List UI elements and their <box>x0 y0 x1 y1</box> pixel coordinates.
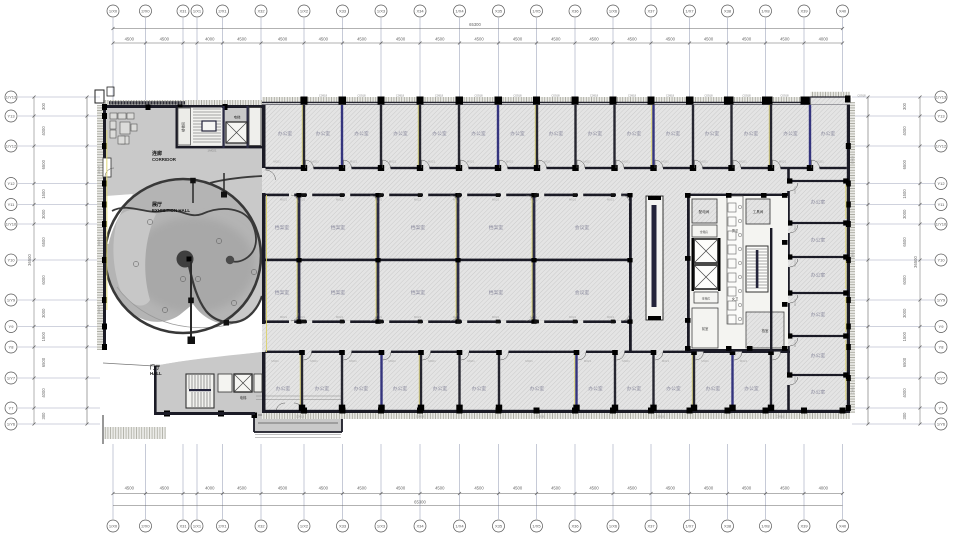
svg-text:M021: M021 <box>739 160 747 164</box>
svg-text:4000: 4000 <box>205 37 215 42</box>
svg-text:办公室: 办公室 <box>315 385 330 392</box>
svg-text:4500: 4500 <box>396 486 406 491</box>
svg-text:办公室: 办公室 <box>811 352 826 359</box>
svg-text:办公室: 办公室 <box>432 130 447 137</box>
svg-text:连廊: 连廊 <box>152 150 162 157</box>
svg-text:M021: M021 <box>793 298 797 306</box>
svg-text:4500: 4500 <box>396 37 406 42</box>
svg-text:M021: M021 <box>388 359 396 363</box>
svg-text:1/Y13: 1/Y13 <box>6 95 17 100</box>
svg-text:X36: X36 <box>571 9 579 14</box>
svg-text:1/X5: 1/X5 <box>532 9 541 14</box>
svg-text:M021: M021 <box>428 359 436 363</box>
svg-text:C0918: C0918 <box>857 94 866 98</box>
svg-text:办公室: 办公室 <box>744 385 759 392</box>
svg-text:4500: 4500 <box>474 486 484 491</box>
svg-text:Y13: Y13 <box>937 114 945 119</box>
svg-text:M021: M021 <box>700 160 708 164</box>
svg-text:1/Y6: 1/Y6 <box>937 422 946 427</box>
svg-text:1/X7: 1/X7 <box>685 9 694 14</box>
svg-text:M021: M021 <box>793 186 797 194</box>
svg-text:Y8: Y8 <box>9 345 15 350</box>
svg-text:4500: 4500 <box>319 486 329 491</box>
svg-text:4000: 4000 <box>41 126 46 136</box>
svg-text:1/X6: 1/X6 <box>609 524 618 529</box>
svg-text:M021: M021 <box>414 198 422 202</box>
svg-text:办公室: 办公室 <box>705 130 720 137</box>
svg-text:6500: 6500 <box>41 159 46 169</box>
svg-text:4500: 4500 <box>551 486 561 491</box>
svg-text:1/X0: 1/X0 <box>109 9 118 14</box>
svg-text:4500: 4500 <box>742 486 752 491</box>
svg-text:C0918: C0918 <box>656 415 665 419</box>
svg-text:36500: 36500 <box>27 254 32 266</box>
svg-text:X40: X40 <box>839 9 847 14</box>
svg-text:4500: 4500 <box>278 486 288 491</box>
svg-text:4500: 4500 <box>237 486 247 491</box>
svg-text:4500: 4500 <box>319 37 329 42</box>
svg-text:C0918: C0918 <box>396 94 405 98</box>
svg-text:2/X0: 2/X0 <box>141 9 150 14</box>
svg-text:M021: M021 <box>280 315 288 319</box>
svg-text:办公室: 办公室 <box>354 385 369 392</box>
svg-text:2/X0: 2/X0 <box>141 524 150 529</box>
svg-text:4000: 4000 <box>902 126 907 136</box>
svg-text:1/Y10: 1/Y10 <box>936 222 947 227</box>
svg-text:C0918: C0918 <box>590 94 599 98</box>
svg-text:M021: M021 <box>271 359 279 363</box>
svg-text:4500: 4500 <box>666 37 676 42</box>
svg-text:HALL: HALL <box>150 371 162 376</box>
svg-text:4500: 4500 <box>160 37 170 42</box>
svg-text:4500: 4500 <box>589 486 599 491</box>
svg-text:M021: M021 <box>793 224 797 232</box>
svg-text:1/Y7: 1/Y7 <box>937 376 946 381</box>
svg-text:M021: M021 <box>793 259 797 267</box>
svg-text:M021: M021 <box>414 315 422 319</box>
svg-text:4500: 4500 <box>704 486 714 491</box>
svg-text:X37: X37 <box>647 9 655 14</box>
svg-text:X35: X35 <box>495 9 503 14</box>
svg-text:M021: M021 <box>569 315 577 319</box>
svg-text:1500: 1500 <box>902 331 907 341</box>
svg-text:6500: 6500 <box>902 159 907 169</box>
svg-text:1/X2: 1/X2 <box>300 524 309 529</box>
svg-text:X31: X31 <box>179 524 187 529</box>
svg-text:办公室: 办公室 <box>811 237 826 244</box>
svg-text:Y10: Y10 <box>7 258 15 263</box>
svg-text:1/X3: 1/X3 <box>377 524 386 529</box>
svg-text:C0918: C0918 <box>536 415 545 419</box>
svg-text:C0918: C0918 <box>742 94 751 98</box>
svg-text:办公室: 办公室 <box>433 385 448 392</box>
svg-text:X39: X39 <box>800 9 808 14</box>
svg-text:办公室: 办公室 <box>811 389 826 396</box>
svg-text:3000: 3000 <box>902 308 907 318</box>
svg-text:1/X4: 1/X4 <box>455 9 464 14</box>
svg-text:4500: 4500 <box>160 486 170 491</box>
svg-text:6000: 6000 <box>902 275 907 285</box>
svg-text:1/X8: 1/X8 <box>761 524 770 529</box>
svg-text:M021: M021 <box>779 160 787 164</box>
svg-text:1/Y7: 1/Y7 <box>7 376 16 381</box>
svg-text:4000: 4000 <box>819 486 829 491</box>
svg-text:办公室: 办公室 <box>472 385 487 392</box>
svg-text:C0918: C0918 <box>416 415 425 419</box>
svg-text:M021: M021 <box>525 359 533 363</box>
svg-text:M021: M021 <box>793 339 797 347</box>
svg-text:办公室: 办公室 <box>354 130 369 137</box>
svg-text:X38: X38 <box>724 9 732 14</box>
svg-text:JC027: JC027 <box>97 306 101 315</box>
svg-text:3000: 3000 <box>41 209 46 219</box>
svg-text:M021: M021 <box>467 359 475 363</box>
svg-text:300: 300 <box>41 412 46 420</box>
svg-text:4000: 4000 <box>819 37 829 42</box>
svg-text:M021: M021 <box>584 359 592 363</box>
svg-text:办公室: 办公室 <box>811 199 826 206</box>
svg-text:C0918: C0918 <box>296 415 305 419</box>
svg-text:办公室: 办公室 <box>627 130 642 137</box>
svg-text:M021: M021 <box>662 359 670 363</box>
svg-text:1/X1: 1/X1 <box>193 9 202 14</box>
svg-text:3000: 3000 <box>41 308 46 318</box>
svg-text:4500: 4500 <box>666 486 676 491</box>
svg-text:档案室: 档案室 <box>489 224 504 231</box>
svg-text:1/X5: 1/X5 <box>532 524 541 529</box>
svg-text:1/Y12: 1/Y12 <box>6 144 17 149</box>
svg-text:X38: X38 <box>724 524 732 529</box>
svg-text:办公室: 办公室 <box>588 130 603 137</box>
svg-text:4500: 4500 <box>627 37 637 42</box>
svg-text:X34: X34 <box>416 9 424 14</box>
svg-text:X36: X36 <box>571 524 579 529</box>
svg-text:1/Y9: 1/Y9 <box>937 298 946 303</box>
svg-text:M021: M021 <box>661 160 669 164</box>
svg-text:6500: 6500 <box>41 237 46 247</box>
svg-text:300: 300 <box>902 102 907 110</box>
svg-text:办公室: 办公室 <box>471 130 486 137</box>
svg-text:档案室: 档案室 <box>275 224 290 231</box>
svg-text:6500: 6500 <box>41 357 46 367</box>
svg-text:C0918: C0918 <box>551 94 560 98</box>
svg-text:档案室: 档案室 <box>331 289 346 296</box>
svg-text:4500: 4500 <box>357 486 367 491</box>
svg-text:档案室: 档案室 <box>411 224 426 231</box>
svg-text:1/X3: 1/X3 <box>377 9 386 14</box>
svg-text:X33: X33 <box>339 524 347 529</box>
svg-text:办公室: 办公室 <box>588 385 603 392</box>
svg-text:M021: M021 <box>569 198 577 202</box>
svg-text:Y9: Y9 <box>939 324 945 329</box>
svg-text:4500: 4500 <box>742 37 752 42</box>
svg-text:4000: 4000 <box>41 388 46 398</box>
svg-text:2/X1: 2/X1 <box>218 9 227 14</box>
svg-text:Y12: Y12 <box>7 181 15 186</box>
svg-text:金箱房: 金箱房 <box>700 230 709 234</box>
svg-text:X32: X32 <box>257 524 265 529</box>
svg-text:4500: 4500 <box>551 37 561 42</box>
svg-text:JC027: JC027 <box>97 166 101 175</box>
svg-text:1/Y13: 1/Y13 <box>936 95 947 100</box>
svg-text:办公室: 办公室 <box>393 385 408 392</box>
svg-text:4500: 4500 <box>357 37 367 42</box>
svg-text:办公室: 办公室 <box>530 385 545 392</box>
svg-text:4500: 4500 <box>278 37 288 42</box>
svg-text:M021: M021 <box>740 359 748 363</box>
svg-text:办公室: 办公室 <box>278 130 293 137</box>
svg-text:办公室: 办公室 <box>811 311 826 318</box>
svg-text:65300: 65300 <box>414 500 426 505</box>
svg-text:Y8: Y8 <box>939 345 945 350</box>
svg-text:4500: 4500 <box>435 37 445 42</box>
svg-text:4500: 4500 <box>780 486 790 491</box>
svg-text:X32: X32 <box>257 9 265 14</box>
svg-text:C0918: C0918 <box>513 94 522 98</box>
svg-text:M021: M021 <box>607 315 615 319</box>
svg-text:办公室: 办公室 <box>510 130 525 137</box>
svg-text:1M021: 1M021 <box>207 149 217 153</box>
svg-text:C0918: C0918 <box>704 94 713 98</box>
svg-text:Y10: Y10 <box>937 258 945 263</box>
svg-text:前室: 前室 <box>702 326 709 331</box>
svg-text:6000: 6000 <box>41 275 46 285</box>
svg-text:电梯: 电梯 <box>234 115 241 120</box>
svg-text:3000: 3000 <box>902 209 907 219</box>
svg-text:4500: 4500 <box>513 486 523 491</box>
svg-text:65300: 65300 <box>469 22 481 27</box>
svg-text:M021: M021 <box>389 160 397 164</box>
svg-text:男卫: 男卫 <box>732 228 739 233</box>
svg-text:M021: M021 <box>280 198 288 202</box>
svg-text:6500: 6500 <box>902 237 907 247</box>
svg-text:4500: 4500 <box>125 37 135 42</box>
svg-text:M021: M021 <box>583 160 591 164</box>
svg-text:Y9: Y9 <box>9 324 15 329</box>
svg-text:M021: M021 <box>273 160 281 164</box>
svg-text:4500: 4500 <box>435 486 445 491</box>
svg-text:300: 300 <box>902 412 907 420</box>
svg-text:C0918: C0918 <box>474 94 483 98</box>
svg-text:36500: 36500 <box>913 256 918 268</box>
svg-text:C0918: C0918 <box>776 415 785 419</box>
svg-text:4500: 4500 <box>589 37 599 42</box>
svg-text:1/X4: 1/X4 <box>455 524 464 529</box>
svg-text:M021: M021 <box>310 359 318 363</box>
svg-text:Y12: Y12 <box>937 181 945 186</box>
svg-text:X35: X35 <box>495 524 503 529</box>
svg-text:Y7: Y7 <box>9 406 15 411</box>
svg-text:M021: M021 <box>311 160 319 164</box>
svg-text:M021: M021 <box>622 160 630 164</box>
svg-text:工具间: 工具间 <box>753 209 764 214</box>
svg-text:C0918: C0918 <box>357 94 366 98</box>
svg-text:C0918: C0918 <box>666 94 675 98</box>
svg-text:C0918: C0918 <box>628 94 637 98</box>
svg-text:C0918: C0918 <box>851 250 855 259</box>
svg-text:1/X8: 1/X8 <box>761 9 770 14</box>
svg-text:电梯: 电梯 <box>240 395 247 400</box>
svg-text:4500: 4500 <box>627 486 637 491</box>
svg-text:M021: M021 <box>544 160 552 164</box>
svg-text:办公室: 办公室 <box>811 272 826 279</box>
svg-text:C0918: C0918 <box>319 94 328 98</box>
svg-text:4500: 4500 <box>780 37 790 42</box>
svg-text:Y13: Y13 <box>7 114 15 119</box>
svg-text:档案室: 档案室 <box>489 289 504 296</box>
svg-text:门厅: 门厅 <box>150 364 160 371</box>
svg-text:金箱房: 金箱房 <box>702 297 711 301</box>
svg-text:1500: 1500 <box>41 331 46 341</box>
svg-text:办公室: 办公室 <box>316 130 331 137</box>
svg-text:办公室: 办公室 <box>821 130 836 137</box>
svg-text:M021: M021 <box>336 198 344 202</box>
svg-text:办公室: 办公室 <box>666 130 681 137</box>
svg-text:档室: 档室 <box>762 328 769 333</box>
svg-text:M021: M021 <box>336 315 344 319</box>
svg-text:会议室: 会议室 <box>575 224 590 231</box>
svg-text:4500: 4500 <box>513 37 523 42</box>
svg-text:2/X1: 2/X1 <box>218 524 227 529</box>
svg-text:X31: X31 <box>179 9 187 14</box>
svg-text:办公室: 办公室 <box>666 385 681 392</box>
svg-text:1/Y12: 1/Y12 <box>936 144 947 149</box>
svg-text:楼梯间: 楼梯间 <box>181 122 186 132</box>
svg-text:JC027: JC027 <box>97 238 101 247</box>
svg-text:M021: M021 <box>428 160 436 164</box>
svg-text:4000: 4000 <box>205 486 215 491</box>
svg-text:X33: X33 <box>339 9 347 14</box>
svg-text:M021: M021 <box>506 160 514 164</box>
svg-text:EXHIBITION HALL: EXHIBITION HALL <box>152 208 190 213</box>
svg-text:办公室: 办公室 <box>627 385 642 392</box>
svg-text:CORRIDOR: CORRIDOR <box>152 157 177 162</box>
svg-text:Y7: Y7 <box>939 406 945 411</box>
svg-text:300: 300 <box>41 102 46 110</box>
svg-text:档案室: 档案室 <box>331 224 346 231</box>
svg-text:4500: 4500 <box>237 37 247 42</box>
svg-text:4500: 4500 <box>704 37 714 42</box>
svg-text:展厅: 展厅 <box>151 201 162 208</box>
svg-text:C0918: C0918 <box>435 94 444 98</box>
svg-text:M021: M021 <box>492 315 500 319</box>
svg-text:办公室: 办公室 <box>744 130 759 137</box>
svg-text:M021: M021 <box>492 198 500 202</box>
svg-text:C0918: C0918 <box>851 155 855 164</box>
svg-text:M021: M021 <box>350 160 358 164</box>
svg-text:4000: 4000 <box>902 388 907 398</box>
svg-text:M021: M021 <box>701 359 709 363</box>
svg-text:1/X2: 1/X2 <box>300 9 309 14</box>
svg-text:M021: M021 <box>793 376 797 384</box>
svg-text:M021: M021 <box>349 359 357 363</box>
svg-text:1500: 1500 <box>902 189 907 199</box>
svg-text:Y11: Y11 <box>8 202 16 207</box>
svg-text:1/X7: 1/X7 <box>685 524 694 529</box>
svg-text:1/Y10: 1/Y10 <box>6 222 17 227</box>
svg-text:M021: M021 <box>607 198 615 202</box>
svg-text:1/Y9: 1/Y9 <box>7 298 16 303</box>
svg-text:X40: X40 <box>839 524 847 529</box>
svg-text:X34: X34 <box>416 524 424 529</box>
svg-text:档案室: 档案室 <box>411 289 426 296</box>
svg-text:办公室: 办公室 <box>549 130 564 137</box>
svg-text:办公室: 办公室 <box>706 385 721 392</box>
svg-text:Y11: Y11 <box>938 202 946 207</box>
svg-text:M021: M021 <box>816 160 824 164</box>
svg-text:1/X1: 1/X1 <box>193 524 202 529</box>
svg-text:办公室: 办公室 <box>276 385 291 392</box>
svg-text:1500: 1500 <box>41 189 46 199</box>
svg-text:4500: 4500 <box>474 37 484 42</box>
svg-text:C0918: C0918 <box>780 94 789 98</box>
svg-text:档案室: 档案室 <box>275 289 290 296</box>
svg-text:4500: 4500 <box>125 486 135 491</box>
svg-text:办公室: 办公室 <box>783 130 798 137</box>
svg-text:1/X6: 1/X6 <box>609 9 618 14</box>
svg-text:会议室: 会议室 <box>575 289 590 296</box>
svg-text:C0918: C0918 <box>851 385 855 394</box>
svg-text:办公室: 办公室 <box>393 130 408 137</box>
svg-text:M021: M021 <box>467 160 475 164</box>
svg-text:1/Y6: 1/Y6 <box>7 422 16 427</box>
svg-text:女卫: 女卫 <box>732 296 739 301</box>
svg-text:M021: M021 <box>622 359 630 363</box>
svg-text:1/X0: 1/X0 <box>109 524 118 529</box>
svg-text:X37: X37 <box>647 524 655 529</box>
svg-text:X39: X39 <box>800 524 808 529</box>
svg-text:6500: 6500 <box>902 357 907 367</box>
svg-text:配电间: 配电间 <box>699 209 710 214</box>
